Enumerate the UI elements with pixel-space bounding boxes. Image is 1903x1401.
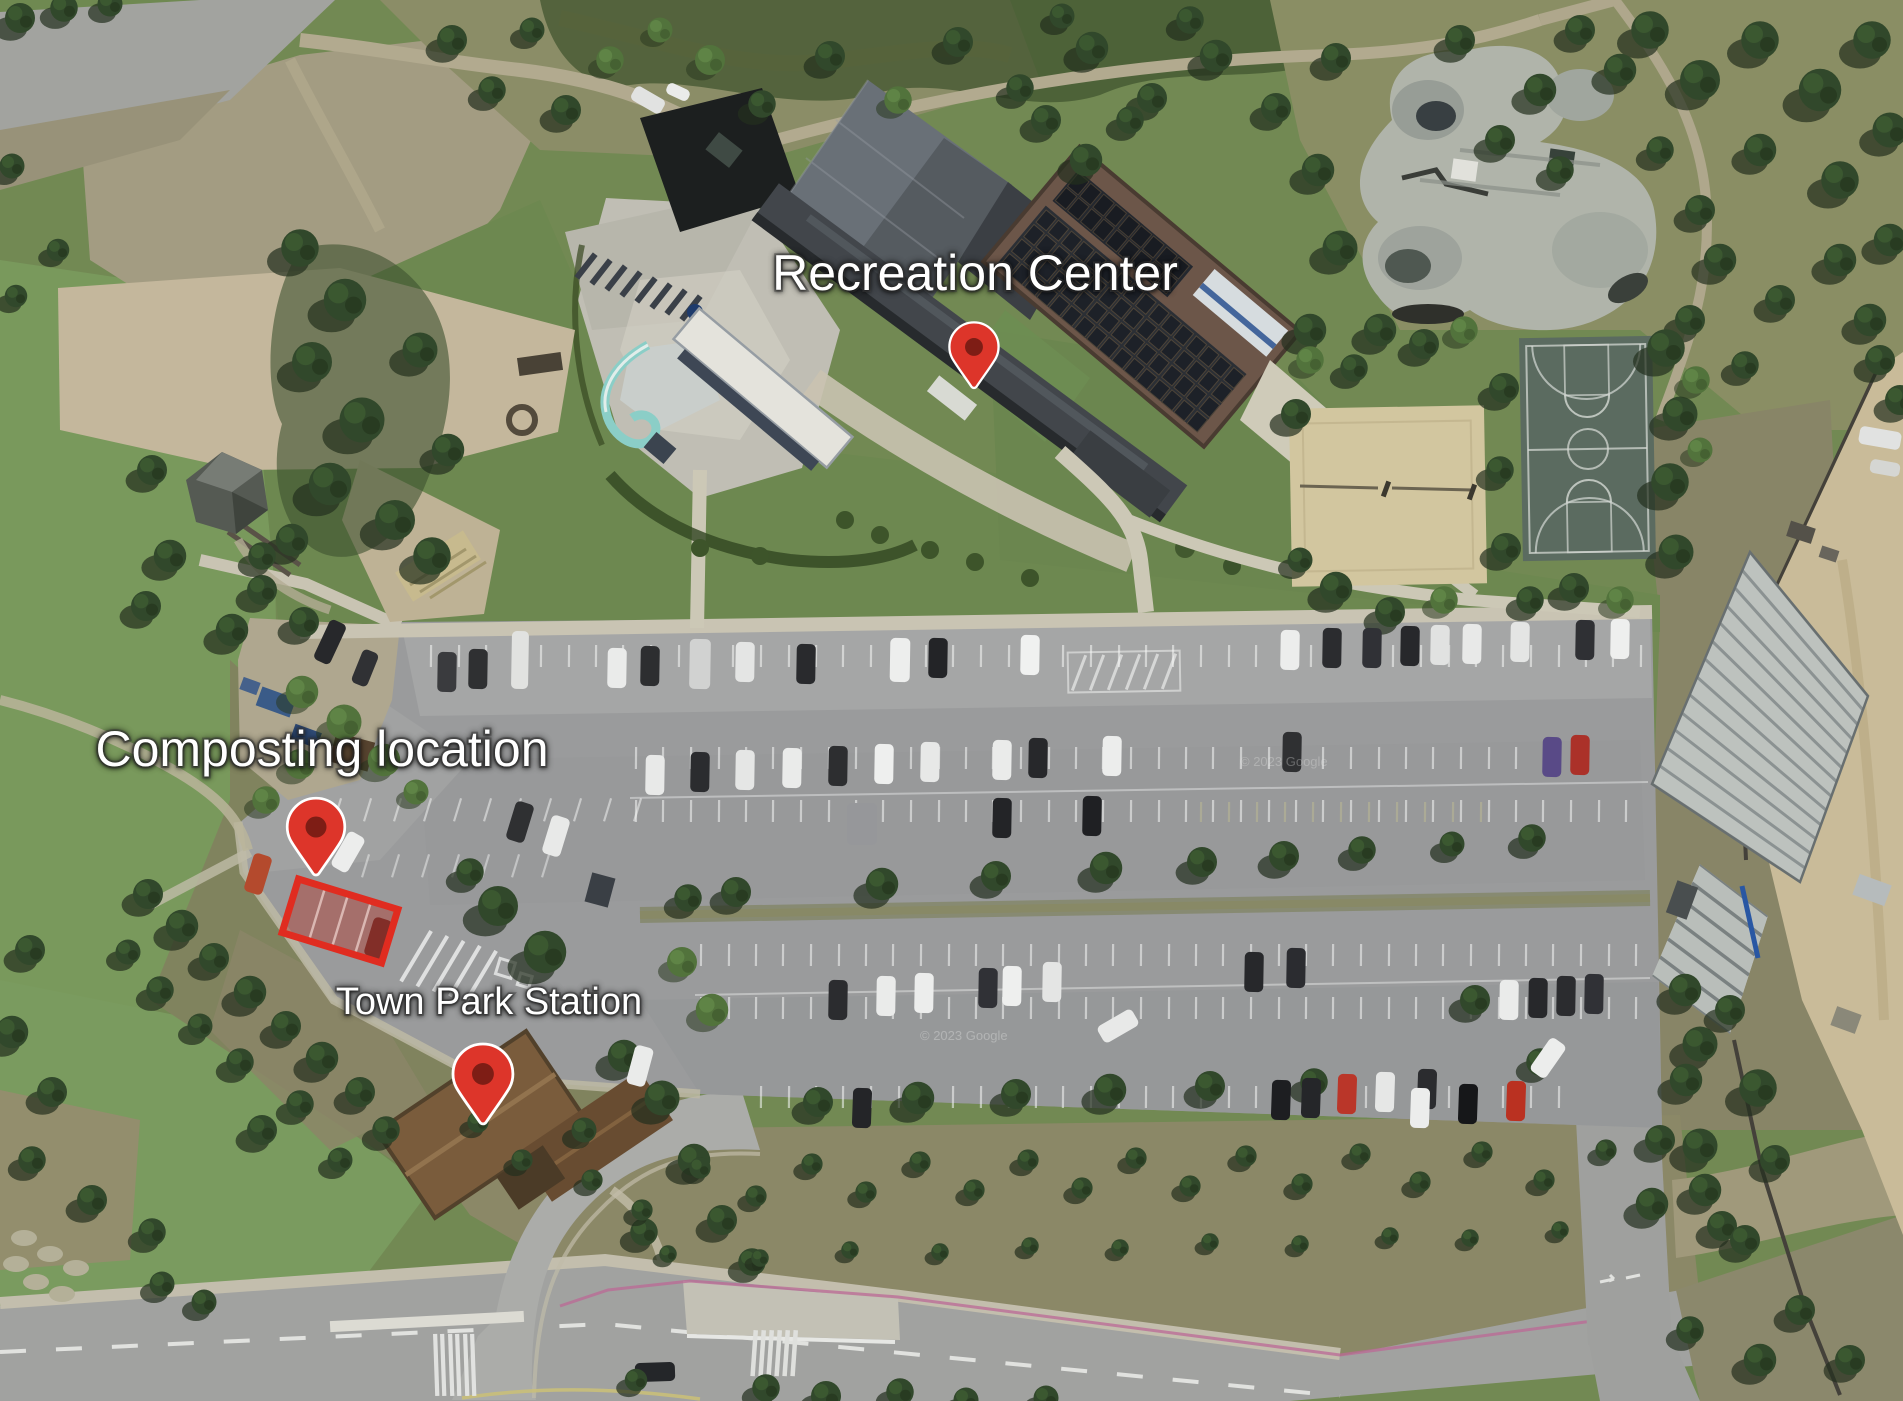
svg-text:Composting location: Composting location [95,721,548,777]
svg-text:© 2023 Google: © 2023 Google [1240,754,1328,769]
svg-text:Town Park Station: Town Park Station [336,981,642,1023]
svg-text:© 2023 Google: © 2023 Google [920,1028,1008,1043]
svg-text:Recreation Center: Recreation Center [772,245,1178,301]
